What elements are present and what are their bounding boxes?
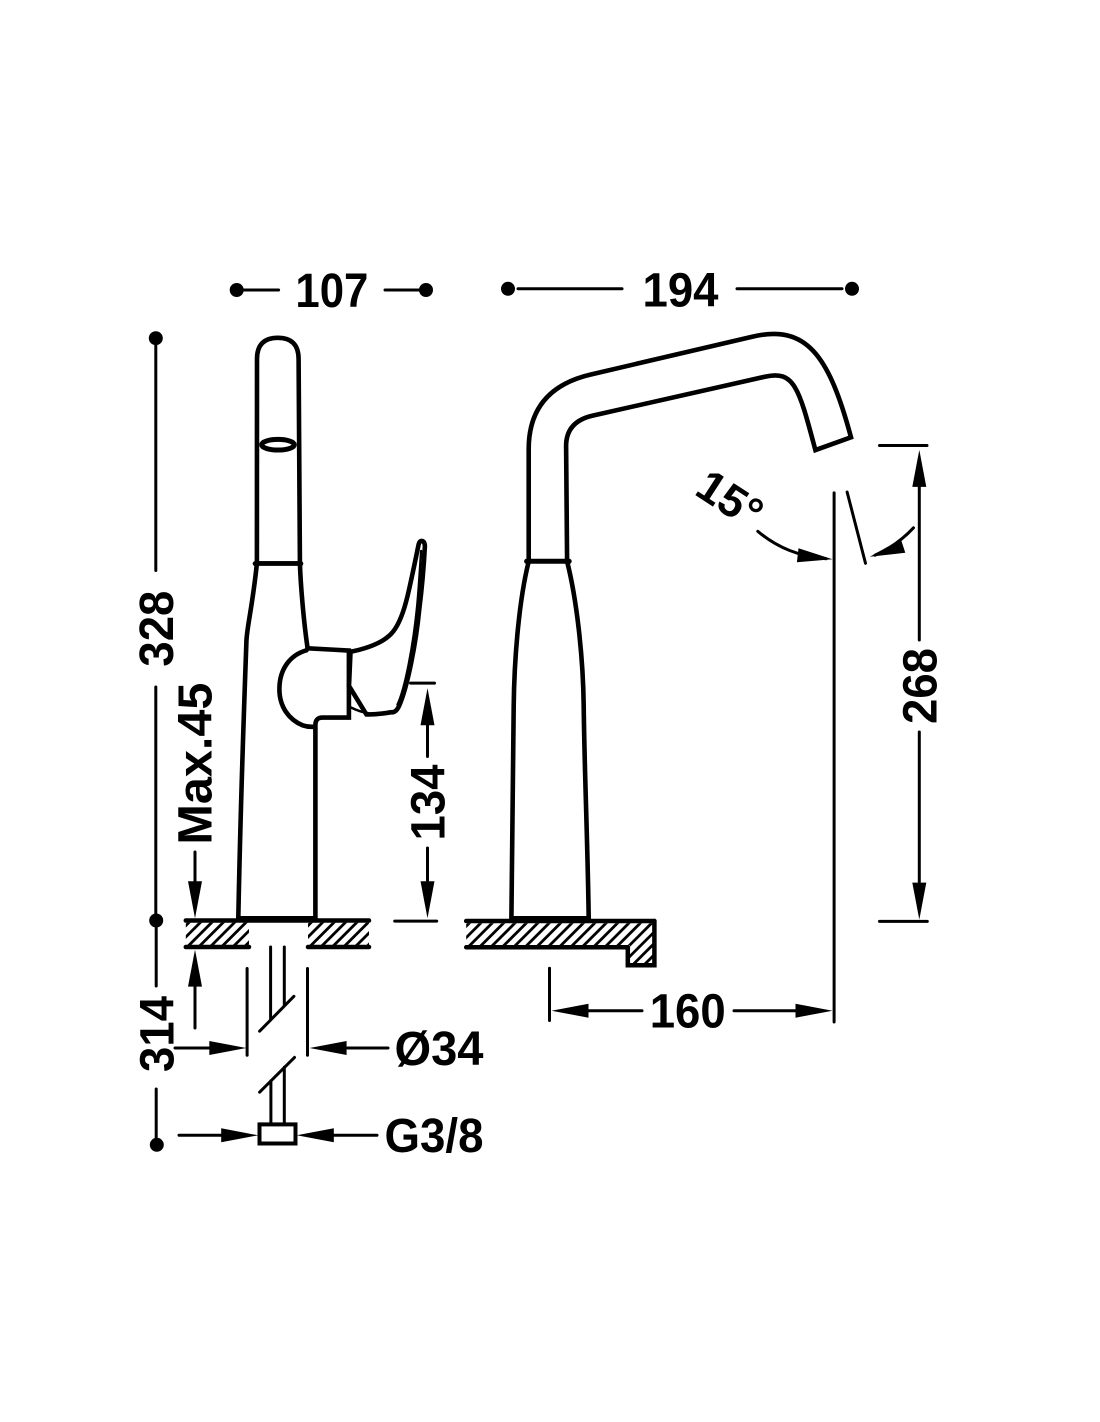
svg-text:328: 328: [131, 591, 184, 667]
svg-text:Ø34: Ø34: [395, 1023, 484, 1076]
svg-text:G3/8: G3/8: [385, 1110, 484, 1163]
svg-text:134: 134: [403, 764, 456, 840]
svg-text:160: 160: [650, 986, 726, 1039]
svg-text:314: 314: [132, 996, 185, 1072]
svg-text:268: 268: [895, 648, 948, 724]
svg-text:Max.45: Max.45: [170, 683, 223, 845]
svg-text:107: 107: [295, 265, 368, 318]
svg-text:194: 194: [643, 264, 719, 317]
